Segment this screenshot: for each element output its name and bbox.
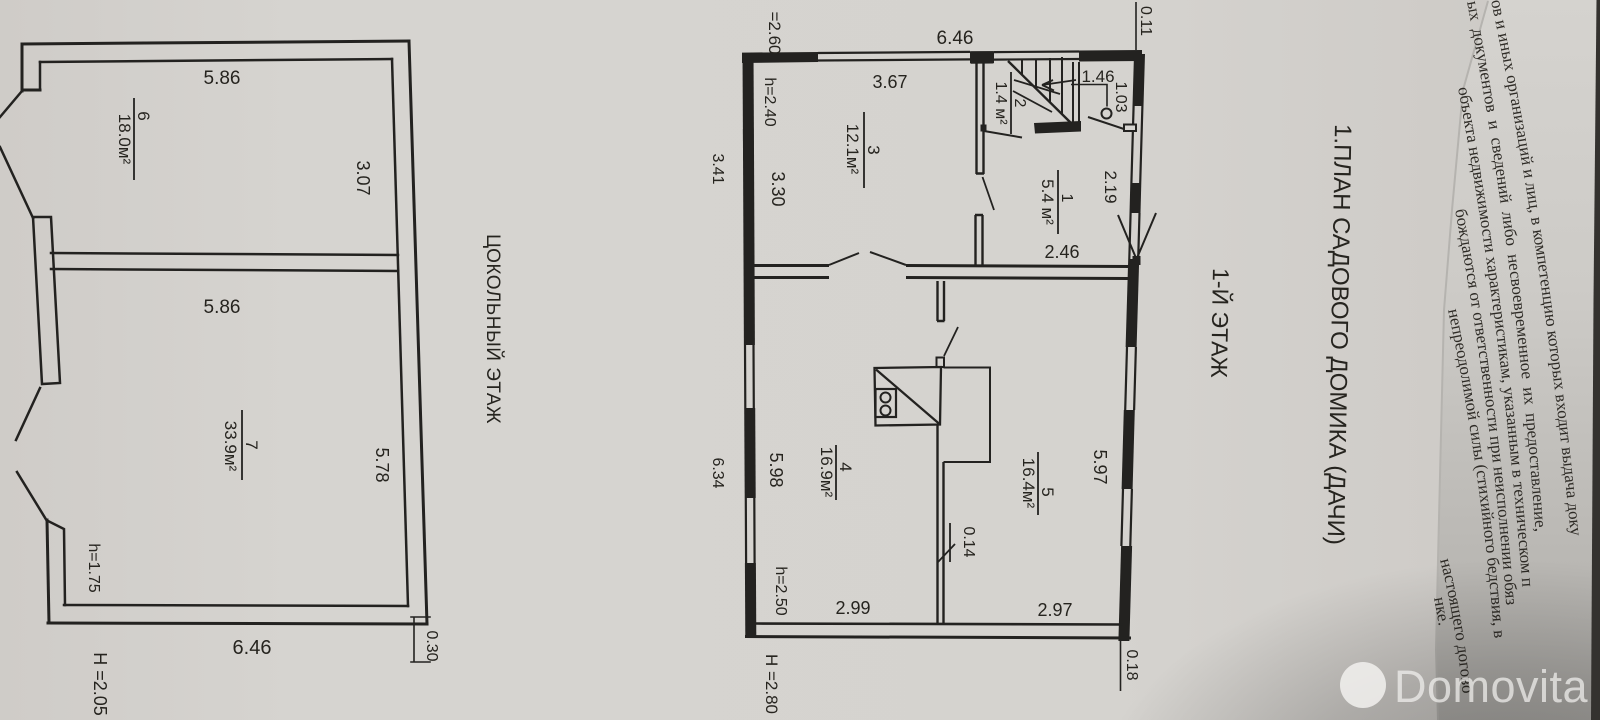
svg-text:1.46: 1.46 (1081, 67, 1114, 86)
svg-text:1: 1 (1058, 194, 1075, 203)
svg-text:0.18: 0.18 (1123, 649, 1140, 680)
svg-text:7: 7 (242, 440, 261, 449)
svg-text:5.86: 5.86 (204, 68, 241, 89)
svg-text:6.46: 6.46 (233, 637, 272, 659)
svg-text:=2.60: =2.60 (765, 11, 784, 54)
svg-text:6.46: 6.46 (937, 28, 974, 49)
svg-text:5.4 м²: 5.4 м² (1038, 179, 1057, 225)
svg-text:33.9м²: 33.9м² (221, 421, 240, 472)
svg-text:1.03: 1.03 (1112, 81, 1129, 112)
svg-text:1.4 м²: 1.4 м² (992, 81, 1009, 125)
svg-text:16.9м²: 16.9м² (817, 447, 836, 498)
svg-text:0.11: 0.11 (1137, 6, 1154, 36)
svg-text:h=1.75: h=1.75 (85, 543, 102, 592)
svg-text:6.34: 6.34 (709, 457, 726, 488)
svg-text:3.07: 3.07 (353, 160, 373, 195)
svg-text:h=2.40: h=2.40 (761, 77, 778, 126)
svg-text:3.67: 3.67 (872, 72, 907, 92)
svg-text:18.0м²: 18.0м² (115, 114, 134, 165)
svg-text:2.97: 2.97 (1037, 600, 1072, 620)
svg-text:3: 3 (864, 145, 883, 154)
svg-text:0.30: 0.30 (423, 630, 440, 661)
svg-text:5.78: 5.78 (372, 447, 392, 482)
svg-text:2.99: 2.99 (835, 598, 870, 618)
svg-text:ЦОКОЛЬНЫЙ ЭТАЖ: ЦОКОЛЬНЫЙ ЭТАЖ (482, 234, 504, 424)
svg-text:5: 5 (1038, 487, 1057, 496)
svg-text:h=2.50: h=2.50 (772, 566, 789, 615)
svg-text:2.19: 2.19 (1101, 170, 1120, 203)
svg-text:2: 2 (1011, 99, 1028, 108)
svg-text:0.14: 0.14 (960, 526, 977, 557)
svg-text:6: 6 (134, 111, 153, 120)
svg-text:Н =2.05: Н =2.05 (90, 652, 110, 716)
svg-text:Domovita: Domovita (1394, 661, 1589, 712)
svg-text:3.30: 3.30 (768, 171, 788, 206)
svg-text:5.97: 5.97 (1090, 449, 1110, 484)
svg-text:5.98: 5.98 (766, 452, 786, 487)
svg-text:Н =2.80: Н =2.80 (762, 654, 781, 714)
svg-text:4: 4 (836, 462, 855, 471)
svg-text:12.1м²: 12.1м² (843, 124, 862, 175)
svg-text:16.4м²: 16.4м² (1019, 458, 1038, 509)
svg-text:3.41: 3.41 (709, 153, 726, 184)
svg-text:2.46: 2.46 (1044, 242, 1079, 262)
svg-text:1-Й ЭТАЖ: 1-Й ЭТАЖ (1206, 268, 1235, 378)
svg-text:5.86: 5.86 (204, 297, 241, 318)
